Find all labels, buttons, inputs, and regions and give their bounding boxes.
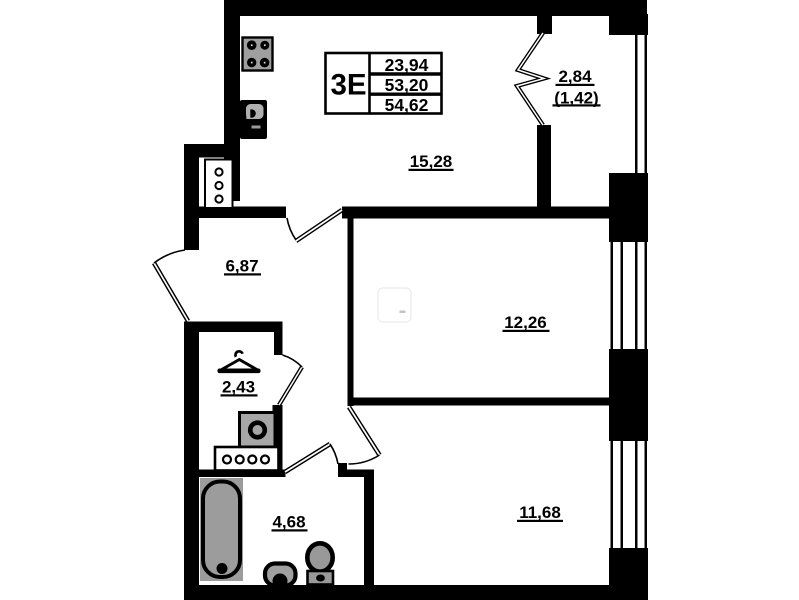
svg-text:3Е: 3Е — [330, 69, 366, 102]
svg-text:53,20: 53,20 — [385, 75, 429, 95]
svg-text:12,26: 12,26 — [504, 313, 547, 332]
svg-text:11,68: 11,68 — [519, 503, 561, 522]
svg-text:23,94: 23,94 — [385, 55, 429, 75]
svg-text:2,84: 2,84 — [558, 67, 592, 86]
svg-text:4,68: 4,68 — [272, 513, 305, 532]
svg-text:2,43: 2,43 — [222, 378, 255, 397]
svg-text:15,28: 15,28 — [410, 152, 453, 171]
svg-text:54,62: 54,62 — [385, 95, 429, 115]
svg-text:6,87: 6,87 — [225, 257, 258, 276]
